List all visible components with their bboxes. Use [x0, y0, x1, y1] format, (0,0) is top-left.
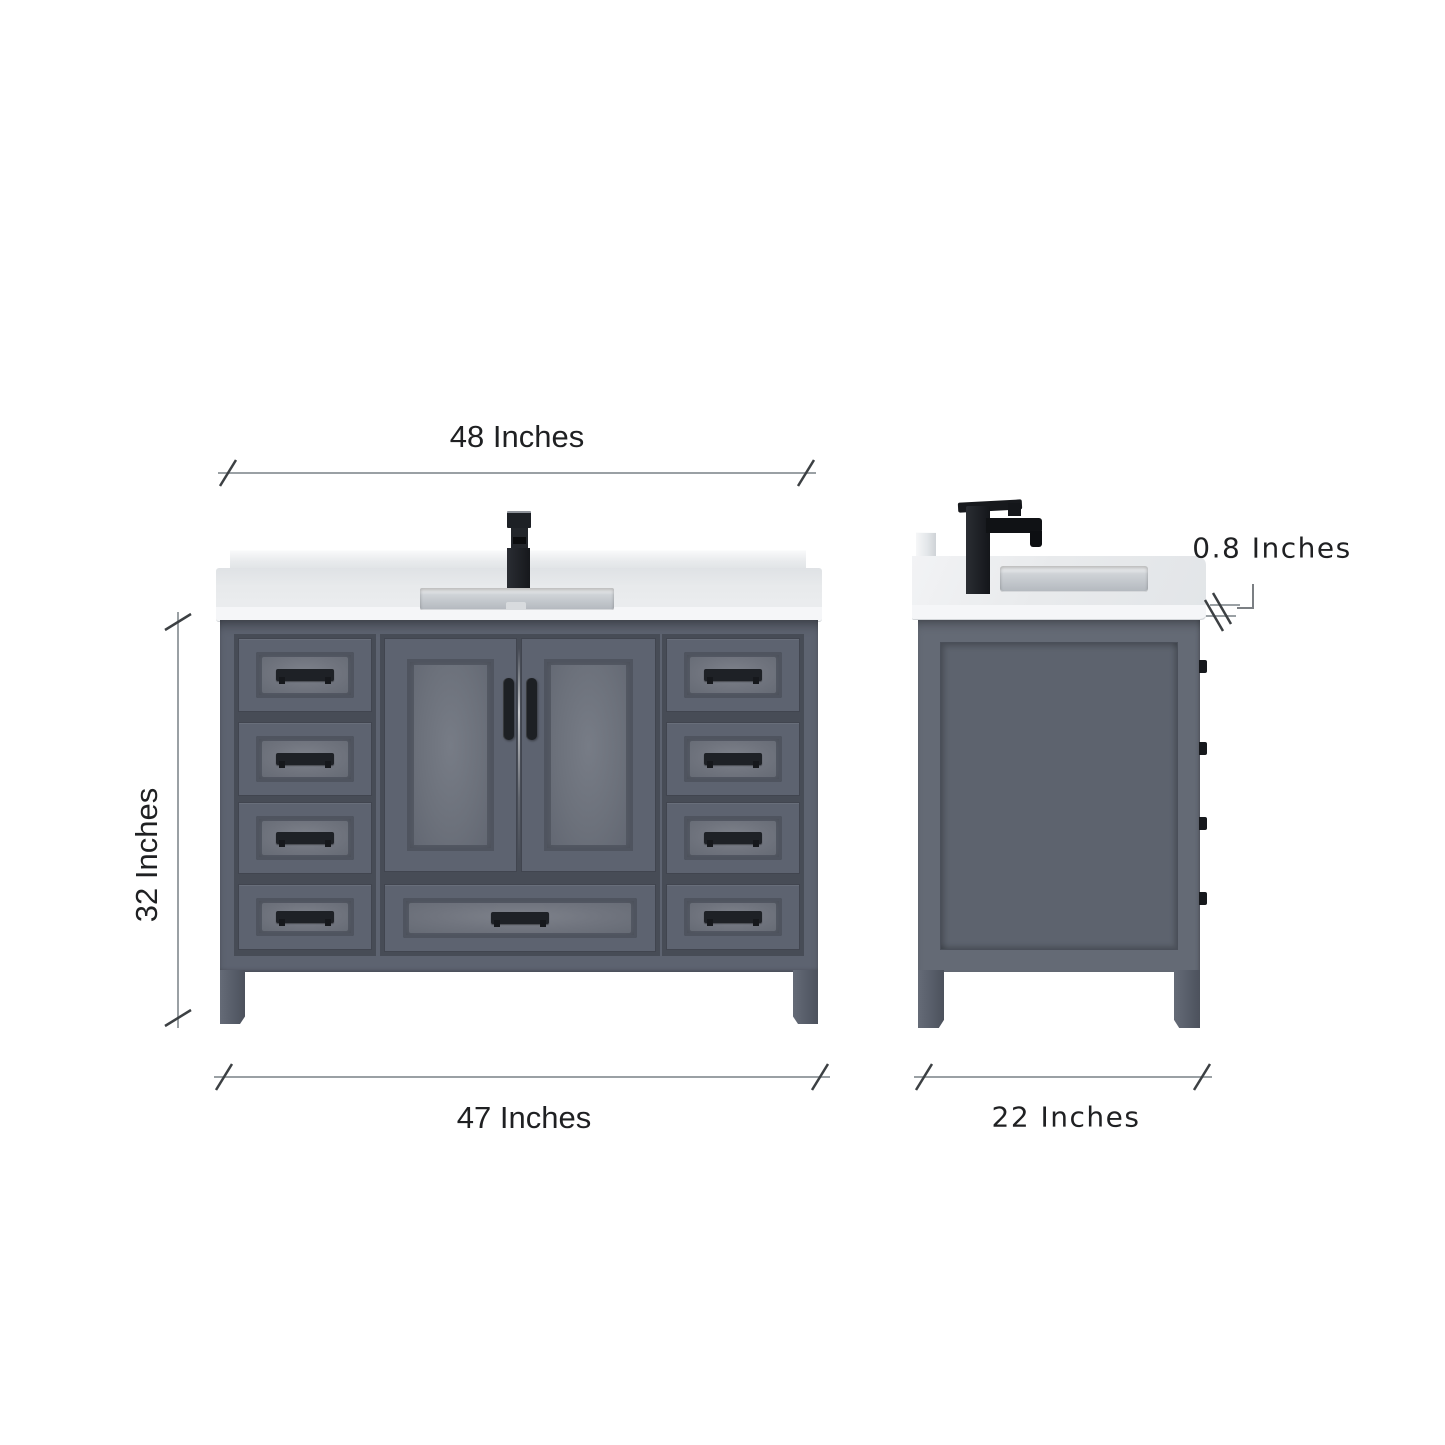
- drawer-handle: [276, 911, 334, 923]
- dim-label-bottom-width: 47 Inches: [457, 1100, 591, 1136]
- drawer-handle: [704, 911, 762, 923]
- front-leg-right: [793, 970, 818, 1024]
- cabinet-door-left: [384, 638, 517, 872]
- cabinet-door-right: [521, 638, 656, 872]
- dim-label-top-width: 48 Inches: [450, 419, 584, 455]
- front-sink-drain: [506, 602, 526, 610]
- front-faucet-handle: [507, 511, 531, 528]
- door-gap-highlight: [518, 648, 520, 862]
- tick-marks-top: [220, 460, 814, 486]
- front-sink: [420, 588, 614, 610]
- side-leg-back: [918, 970, 944, 1028]
- side-countertop-edge: [912, 605, 1206, 620]
- door-handle-left: [503, 678, 514, 740]
- side-handle-nub-2: [1199, 742, 1207, 755]
- drawer-handle: [704, 832, 762, 844]
- drawer-right-2: [666, 722, 800, 796]
- dim-label-countertop-thickness: 0.8 Inches: [1192, 532, 1351, 565]
- drawer-left-3: [238, 802, 372, 874]
- drawer-handle: [276, 832, 334, 844]
- drawer-handle: [704, 669, 762, 681]
- side-handle-nub-4: [1199, 892, 1207, 905]
- side-cabinet-panel: [940, 642, 1178, 950]
- side-faucet-spout-tip: [1030, 531, 1042, 547]
- thickness-leader-line: [1237, 584, 1253, 608]
- side-leg-front: [1174, 970, 1200, 1028]
- drawer-handle: [704, 753, 762, 765]
- dim-label-depth: 22 Inches: [992, 1101, 1141, 1134]
- vanity-dimension-diagram: 48 Inches 32 Inches 47 Inches 22 Inches …: [0, 0, 1445, 1445]
- tick-marks-height: [165, 614, 191, 1026]
- drawer-handle: [276, 669, 334, 681]
- drawer-left-4: [238, 884, 372, 950]
- door-handle-right: [526, 678, 537, 740]
- front-leg-left: [220, 970, 245, 1024]
- side-faucet-lever-knob: [1008, 503, 1021, 516]
- thickness-slashes: [1205, 593, 1231, 631]
- tick-marks-bottom-side: [916, 1064, 1210, 1090]
- front-faucet-neck: [511, 528, 528, 550]
- side-sink: [1000, 566, 1148, 592]
- dim-label-height: 32 Inches: [129, 788, 165, 922]
- drawer-right-3: [666, 802, 800, 874]
- drawer-handle: [491, 912, 549, 924]
- drawer-left-2: [238, 722, 372, 796]
- drawer-left-1: [238, 638, 372, 712]
- drawer-right-4: [666, 884, 800, 950]
- thickness-tick-lines: [1206, 605, 1240, 616]
- drawer-bottom-center: [384, 884, 656, 952]
- drawer-handle: [276, 753, 334, 765]
- side-handle-nub-1: [1199, 660, 1207, 673]
- tick-marks-bottom-front: [216, 1064, 828, 1090]
- side-handle-nub-3: [1199, 817, 1207, 830]
- drawer-right-1: [666, 638, 800, 712]
